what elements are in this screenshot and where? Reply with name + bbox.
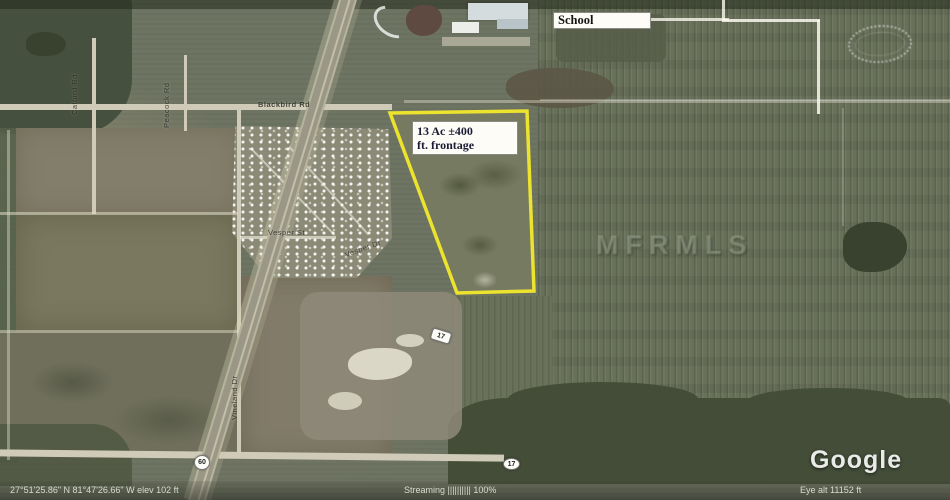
dirt-road [722, 19, 820, 22]
side-road [7, 130, 10, 460]
school-building [452, 22, 479, 33]
road-label-vesper-st: Vesper St [268, 228, 305, 237]
aerial-map-screenshot: Blackbird Rd Catbird Rd Peacock Rd Vinel… [0, 0, 950, 500]
mls-watermark: MFRMLS [596, 230, 826, 261]
google-watermark: Google [810, 446, 902, 475]
field-patch [16, 214, 240, 332]
school-annotation: School [553, 12, 651, 29]
side-road [0, 212, 238, 215]
school-building [468, 3, 528, 20]
grove-row-boundary [842, 108, 844, 226]
road-label-vineland: Vineland Dr [230, 375, 239, 420]
school-building [497, 19, 528, 29]
road-label-peacock: Peacock Rd [162, 83, 171, 128]
woods-patch [0, 0, 132, 134]
road-label-blackbird: Blackbird Rd [258, 100, 310, 109]
grove-row-boundary [540, 99, 950, 101]
eye-altitude: Eye alt 11152 ft [800, 481, 861, 500]
parcel-annotation-line2: ft. frontage [417, 138, 513, 152]
side-road [184, 55, 187, 131]
sand-patch [396, 334, 424, 347]
field-patch [16, 128, 240, 214]
mobile-home-park [232, 126, 392, 278]
pond [26, 32, 66, 56]
parcel-annotation: 13 Ac ±400 ft. frontage [412, 121, 518, 155]
junction-shield: 60 [194, 455, 210, 470]
highway-17-shield: 17 [503, 458, 520, 470]
side-road [92, 38, 96, 214]
side-road [0, 330, 240, 333]
parking-lot [442, 37, 530, 46]
status-bar: 27°51'25.86" N 81°47'26.66" W elev 102 f… [0, 481, 950, 500]
road-label-catbird: Catbird Rd [70, 74, 79, 115]
sand-patch [328, 392, 362, 410]
blackbird-road-line [0, 104, 392, 110]
pointer-coordinates: 27°51'25.86" N 81°47'26.66" W elev 102 f… [10, 481, 179, 500]
parcel-annotation-line1: 13 Ac ±400 [417, 124, 513, 138]
dirt-road [645, 18, 729, 21]
streaming-indicator: Streaming |||||||||| 100% [404, 481, 496, 500]
dirt-road [722, 0, 725, 20]
